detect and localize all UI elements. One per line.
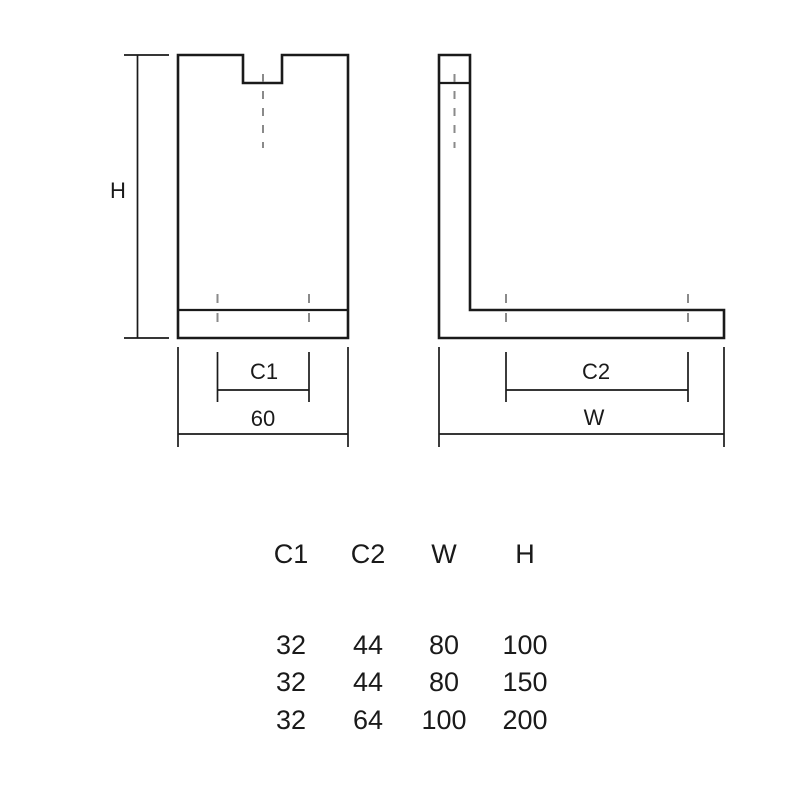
dimension-60-label: 60 [251, 406, 275, 431]
spec-cell-c2: 44 [330, 632, 406, 659]
side-view-outline [439, 55, 724, 338]
spec-cell-c2: 44 [330, 669, 406, 696]
spec-header-h: H [482, 541, 568, 568]
spec-cell-h: 200 [482, 707, 568, 734]
side-view [439, 55, 724, 338]
spec-cell-c1: 32 [252, 707, 330, 734]
spec-cell-c1: 32 [252, 632, 330, 659]
spec-cell-w: 100 [406, 707, 482, 734]
spec-cell-w: 80 [406, 669, 482, 696]
spec-cell-h: 100 [482, 632, 568, 659]
dimension-h: H [110, 55, 169, 338]
dimension-c2-label: C2 [582, 359, 610, 384]
spec-table-row: 32 44 80 150 [252, 669, 568, 696]
spec-table-row: 32 44 80 100 [252, 632, 568, 659]
spec-cell-c2: 64 [330, 707, 406, 734]
spec-header-w: W [406, 541, 482, 568]
dimension-c2: C2 [506, 352, 688, 402]
technical-drawing-page: H C1 60 [0, 0, 802, 802]
dimension-c1: C1 [218, 352, 310, 402]
spec-table-row: 32 64 100 200 [252, 707, 568, 734]
spec-cell-h: 150 [482, 669, 568, 696]
spec-header-c2: C2 [330, 541, 406, 568]
spec-cell-w: 80 [406, 632, 482, 659]
spec-header-c1: C1 [252, 541, 330, 568]
front-view [178, 55, 348, 338]
spec-table-header-row: C1 C2 W H [252, 541, 568, 568]
spec-cell-c1: 32 [252, 669, 330, 696]
dimension-w-label: W [584, 405, 605, 430]
dimension-c1-label: C1 [250, 359, 278, 384]
dimension-h-label: H [110, 178, 126, 203]
